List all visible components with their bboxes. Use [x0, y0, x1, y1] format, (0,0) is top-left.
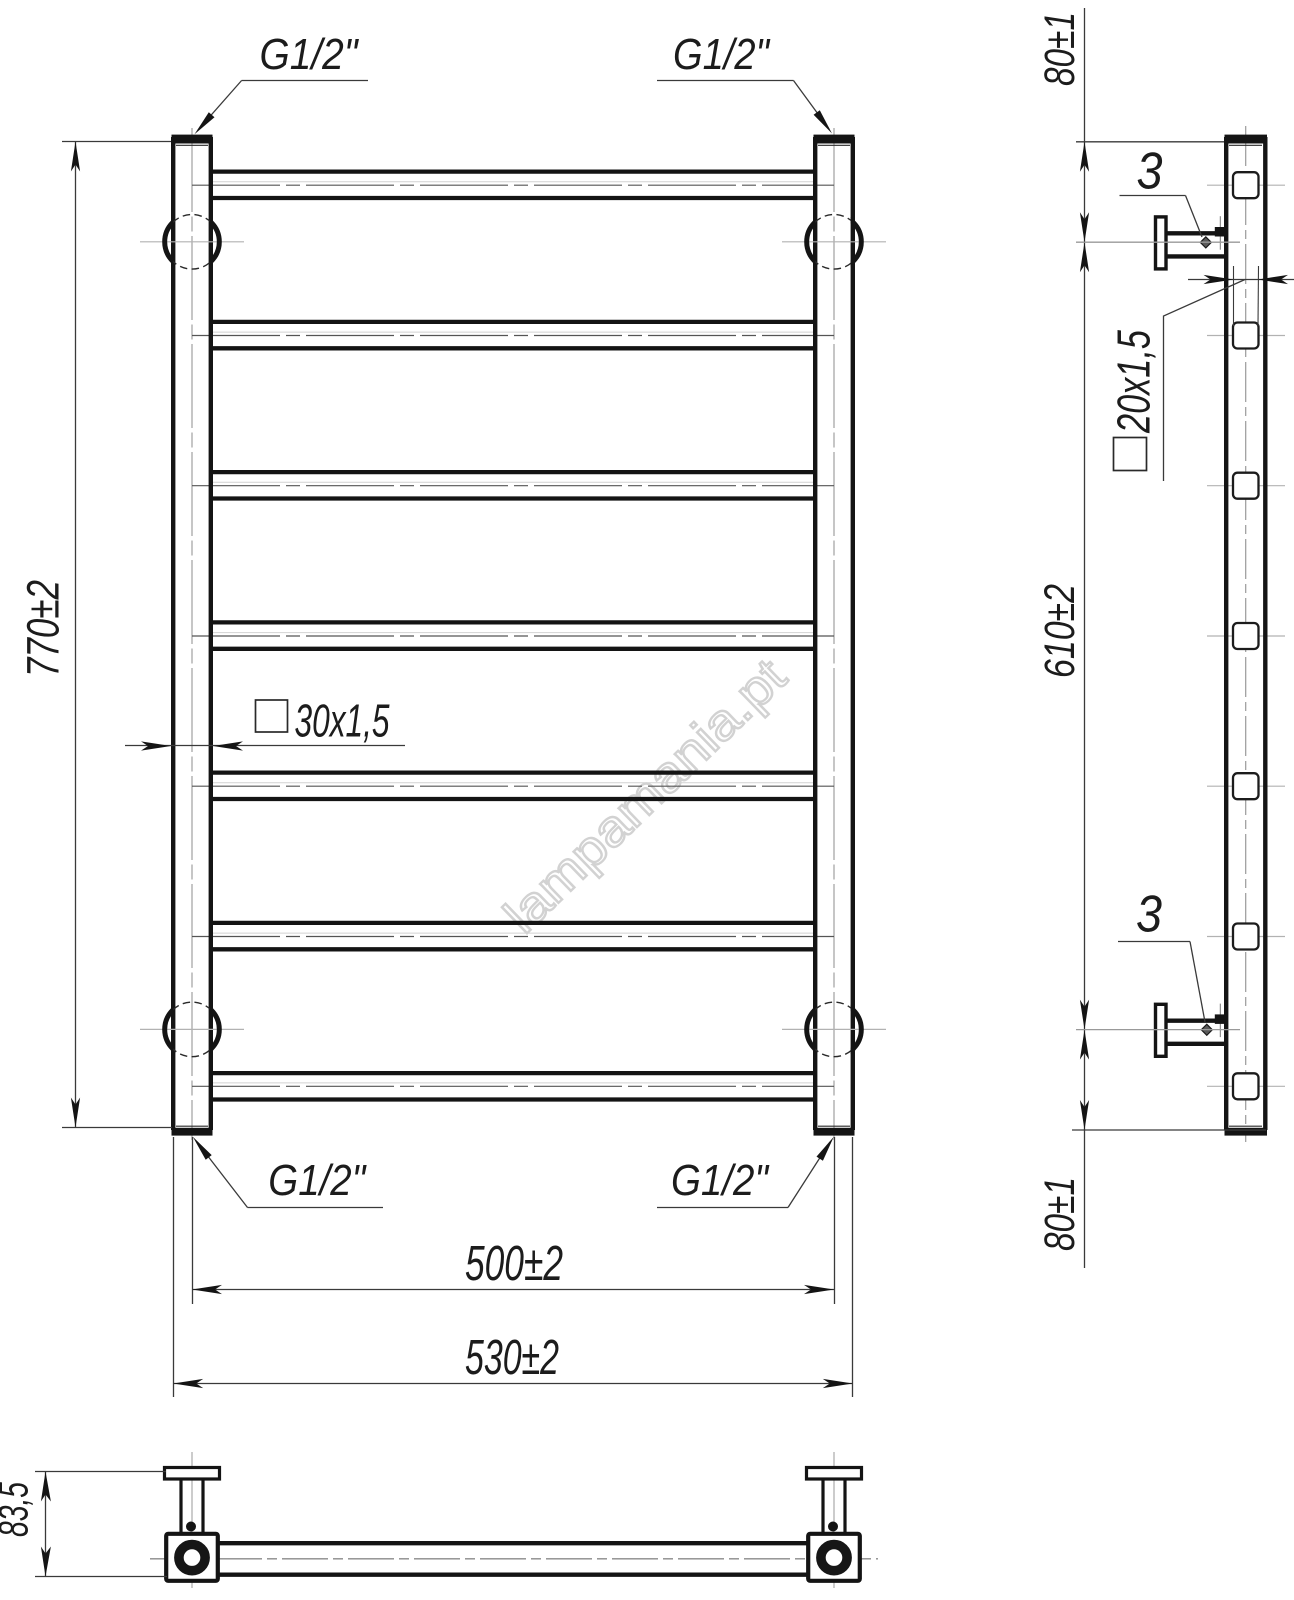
svg-text:3: 3 [1137, 143, 1163, 201]
svg-text:80±1: 80±1 [1036, 12, 1084, 86]
svg-text:3: 3 [1136, 886, 1162, 944]
svg-text:530±2: 530±2 [465, 1331, 559, 1385]
svg-text:500±2: 500±2 [465, 1237, 563, 1291]
svg-text:G1/2": G1/2" [268, 1156, 367, 1205]
svg-text:G1/2": G1/2" [671, 1156, 770, 1205]
svg-text:610±2: 610±2 [1036, 584, 1084, 678]
svg-text:G1/2": G1/2" [673, 30, 771, 79]
svg-text:30x1,5: 30x1,5 [295, 695, 390, 747]
svg-text:20x1,5: 20x1,5 [1108, 330, 1160, 434]
svg-text:83,5: 83,5 [0, 1482, 37, 1537]
svg-text:80±1: 80±1 [1036, 1177, 1084, 1251]
svg-text:770±2: 770±2 [18, 580, 69, 677]
svg-text:G1/2": G1/2" [260, 30, 360, 79]
